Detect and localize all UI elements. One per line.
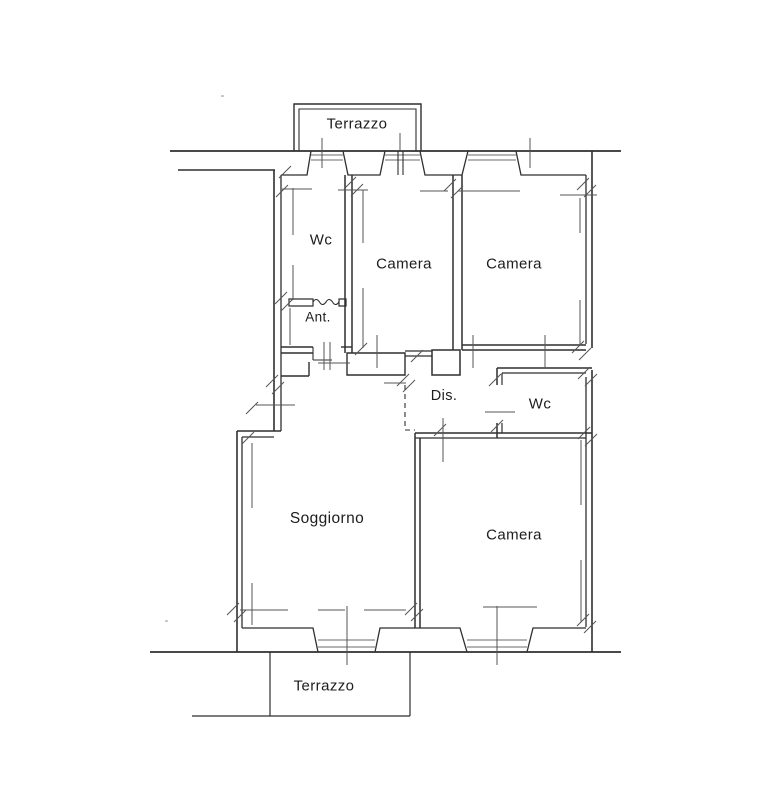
scan-speck: [221, 95, 224, 97]
bottom-windows: [242, 606, 586, 665]
scan-speck: [165, 620, 168, 622]
top-windows: [281, 133, 586, 175]
room-label-wc-right: Wc: [529, 396, 551, 413]
room-label-wc-top: Wc: [310, 232, 332, 249]
hallway-dashed-boundary: [405, 385, 415, 430]
room-label-terrazzo-top: Terrazzo: [327, 116, 388, 133]
floor-plan-page: Terrazzo Wc Camera Camera Ant. Dis. Wc S…: [0, 0, 764, 796]
room-label-soggiorno: Soggiorno: [290, 510, 364, 528]
folding-door-symbol: [289, 299, 346, 306]
room-label-terrazzo-bottom: Terrazzo: [294, 678, 355, 695]
room-label-anteroom: Ant.: [305, 310, 331, 325]
room-label-camera-bottom: Camera: [486, 527, 542, 544]
room-label-camera-top-left: Camera: [376, 256, 432, 273]
room-label-hallway: Dis.: [431, 388, 458, 404]
room-label-camera-top-right: Camera: [486, 256, 542, 273]
